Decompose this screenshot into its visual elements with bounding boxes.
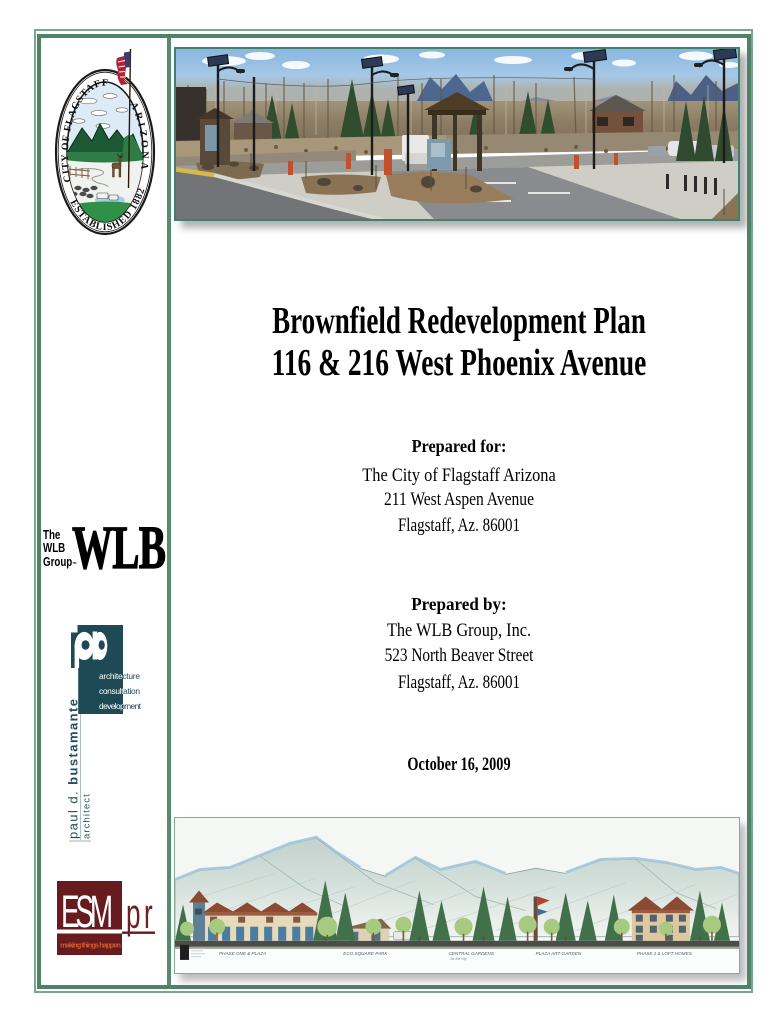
svg-text:ECO SQUARE PARK: ECO SQUARE PARK xyxy=(343,951,388,956)
svg-text:PLAZA ART GARDEN: PLAZA ART GARDEN xyxy=(536,951,582,956)
svg-text:PHASE ONE & PLAZA: PHASE ONE & PLAZA xyxy=(219,951,266,956)
svg-text:pr: pr xyxy=(126,891,153,938)
svg-text:CENTRAL GARDENS: CENTRAL GARDENS xyxy=(448,951,494,956)
svg-text:for the city: for the city xyxy=(450,957,466,961)
svg-text:making things happen: making things happen xyxy=(60,941,121,950)
svg-text:architect: architect xyxy=(82,793,93,839)
svg-text:PHASE 2 & LOFT HOMES: PHASE 2 & LOFT HOMES xyxy=(637,951,693,956)
svg-text:ESM: ESM xyxy=(61,886,113,936)
svg-text:paul d. bustamante: paul d. bustamante xyxy=(66,699,81,839)
